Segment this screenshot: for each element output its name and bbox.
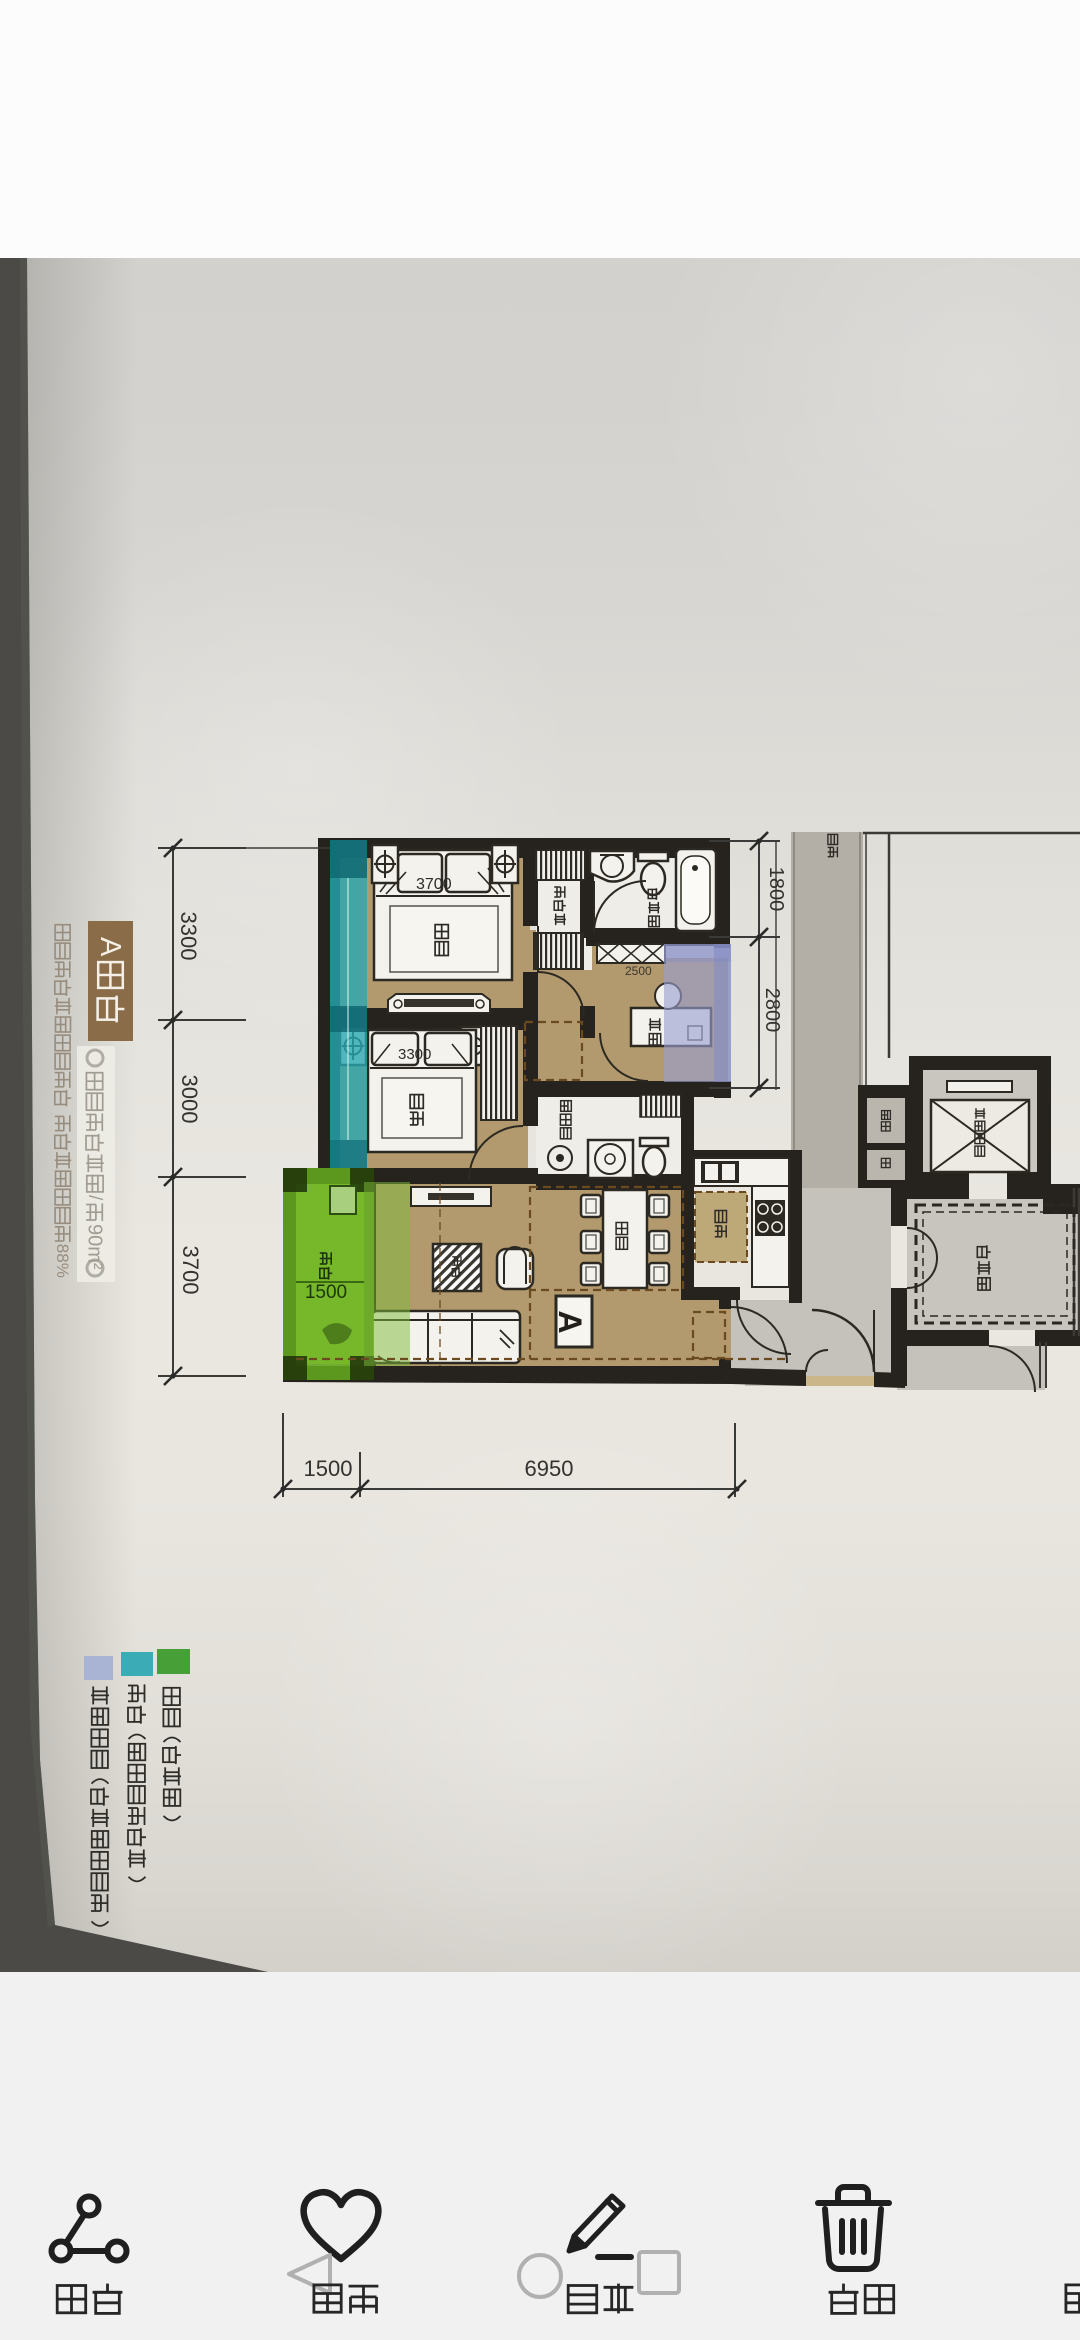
svg-text:2500: 2500: [625, 964, 652, 978]
svg-text:1500: 1500: [305, 1282, 347, 1303]
svg-text:2800: 2800: [761, 988, 783, 1033]
svg-text:3700: 3700: [416, 876, 452, 893]
svg-text:6950: 6950: [525, 1456, 574, 1481]
svg-text:1800: 1800: [765, 867, 787, 912]
svg-text:A: A: [552, 1310, 588, 1333]
svg-text:3000: 3000: [177, 1075, 202, 1124]
svg-text:3700: 3700: [178, 1246, 203, 1295]
svg-text:A: A: [94, 937, 126, 957]
svg-text:/: /: [84, 1195, 105, 1201]
svg-text:3300: 3300: [176, 912, 201, 961]
svg-text:3300: 3300: [398, 1046, 431, 1063]
svg-text:90m²: 90m²: [84, 1224, 106, 1270]
svg-text:88%: 88%: [53, 1244, 72, 1278]
svg-text:1500: 1500: [304, 1456, 353, 1481]
